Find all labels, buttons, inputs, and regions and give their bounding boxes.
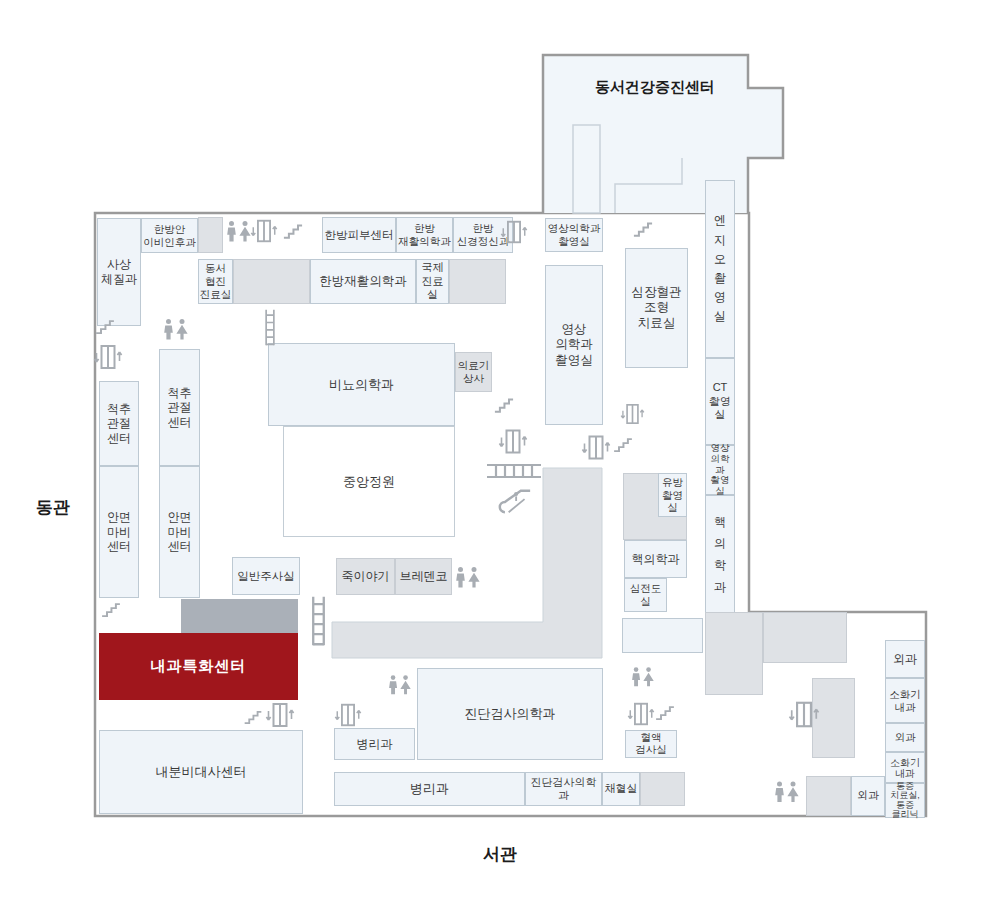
room-pathology-small: 병리과 [334, 728, 415, 760]
room-oriental-ent: 한방안 이비인후과 [141, 218, 198, 253]
elevator-icon [581, 432, 611, 463]
room-medical-supply-store: 의료기 상사 [455, 352, 492, 392]
room-imaging-col-small: 영상 의학과 촬영실 [705, 445, 735, 495]
west-wing-label: 서관 [450, 840, 550, 868]
toilet-icon [226, 220, 252, 243]
stairs-icon [95, 318, 115, 334]
room-diagnostic-lab-big: 진단검사의학과 [417, 668, 603, 760]
central-garden: 중앙정원 [283, 426, 455, 537]
shop-bredenko: 브레덴코 [395, 558, 452, 595]
escalator-icon [498, 487, 538, 515]
toilet-icon [163, 318, 189, 341]
corridor-block-b [233, 259, 310, 304]
room-oriental-skin-center: 한방피부센터 [322, 217, 396, 253]
stairs-icon [101, 601, 121, 617]
elevator-icon [498, 426, 528, 457]
room-surgery-1: 외과 [885, 640, 925, 678]
stairs-icon [243, 709, 263, 724]
room-blood-draw: 채혈실 [602, 772, 640, 806]
stairs-icon [283, 222, 303, 239]
room-spine-joint-center-2: 척추 관절 센터 [159, 349, 200, 466]
toilet-icon [455, 566, 481, 589]
room-diagnostic-lab-small: 진단검사의학과 [525, 772, 602, 806]
room-pain-clinic: 통증 치료실, 통증 클리닉 [885, 783, 925, 818]
room-international-clinic: 국제 진료실 [416, 259, 449, 304]
room-endocrine-metabolism-center: 내분비대사센터 [99, 730, 303, 814]
room-imaging-small-top: 영상의학과 촬영실 [545, 218, 603, 252]
top-building-label: 동서건강증진센터 [560, 70, 750, 104]
room-digestive-1: 소화기 내과 [885, 678, 925, 723]
room-digestive-2: 소화기 내과 [885, 752, 925, 783]
room-unlabeled [622, 618, 703, 653]
room-facial-palsy-center-1: 안면 마비 센터 [99, 466, 139, 598]
corridor-block-d [640, 772, 685, 806]
elevator-icon [93, 342, 123, 372]
room-urology: 비뇨의학과 [268, 343, 455, 426]
ladder-v-icon [261, 309, 279, 346]
room-mammography: 유방 촬영실 [658, 473, 687, 517]
toilet-icon [631, 666, 655, 688]
elevator-icon [500, 218, 528, 246]
toilet-icon [774, 780, 800, 804]
room-blood-test: 혈액 검사실 [625, 730, 677, 758]
room-sasang-constitution: 사상 체질과 [97, 218, 141, 326]
room-ct-suite: CT 촬영실 [705, 358, 735, 445]
stairs-icon [494, 396, 514, 413]
ladder-v-icon [309, 591, 328, 651]
room-pathology-wide: 병리과 [334, 772, 525, 806]
shop-juk-story: 죽이야기 [336, 558, 395, 595]
elevator-icon [334, 701, 362, 729]
room-imaging-big: 영상 의학과 촬영실 [545, 265, 603, 425]
stairs-icon [613, 436, 633, 452]
east-wing-label: 동관 [18, 492, 88, 522]
corridor-block-h [806, 776, 851, 816]
corridor-block-f [763, 612, 847, 663]
room-oriental-rehab-small: 한방 재활의학과 [396, 217, 453, 253]
ladder-h-icon [486, 461, 542, 481]
stairs-icon [633, 220, 653, 237]
room-eastwest-collab-clinic: 동서 협진 진료실 [198, 259, 233, 304]
room-surgery-2: 외과 [885, 723, 925, 752]
room-ecg: 심전도실 [624, 578, 667, 612]
room-internal-medicine-center: 내과특화센터 [99, 633, 298, 700]
stairs-icon [655, 704, 675, 720]
room-angio-suite: 엔 지 오 촬 영 실 [705, 180, 735, 358]
elevator-icon [788, 699, 820, 730]
elevator-icon [265, 701, 295, 729]
corridor-block-c [449, 259, 506, 304]
room-spine-joint-center-1: 척추 관절 센터 [99, 381, 139, 466]
room-injection-room: 일반주사실 [232, 557, 300, 595]
room-nuclear-medicine: 핵의학과 [624, 540, 687, 578]
hospital-floor-map: 사상 체질과한방안 이비인후과한방피부센터한방 재활의학과한방 신경정신과영상의… [0, 0, 985, 915]
room-facial-palsy-center-2: 안면 마비 센터 [159, 466, 200, 598]
corridor-block-e [705, 612, 763, 695]
room-surgery-3: 외과 [851, 776, 885, 816]
dark-corridor-bar [181, 599, 298, 633]
room-oriental-rehab-big: 한방재활의학과 [310, 259, 416, 304]
toilet-icon [388, 674, 412, 696]
corridor-block-a [198, 217, 223, 253]
elevator-icon [620, 401, 645, 427]
elevator-icon [250, 217, 278, 245]
room-cardio-angiography: 심장혈관 조형 치료실 [625, 248, 688, 368]
elevator-icon [627, 700, 655, 728]
room-nuclear-medicine-col: 핵 의 학 과 [705, 495, 735, 615]
